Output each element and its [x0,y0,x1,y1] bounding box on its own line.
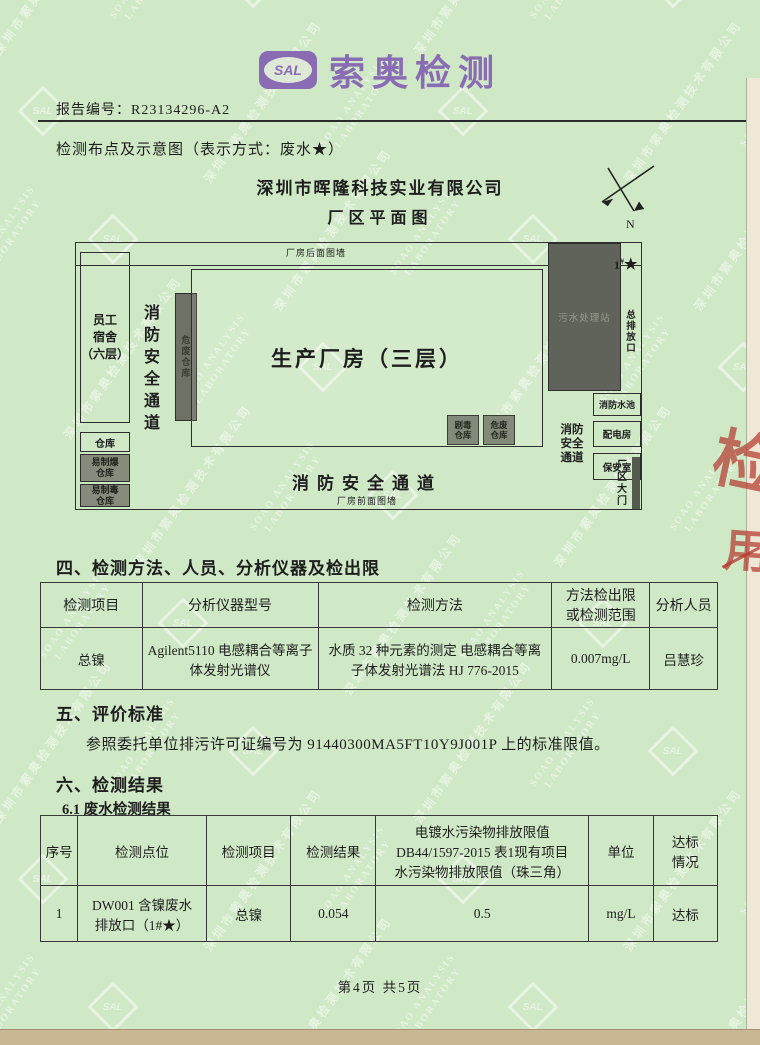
north-arrow-icon: N [578,158,658,236]
inner-warehouses: 剧毒 仓库 危废 仓库 [447,415,515,445]
sal-logo-text: SAL [274,62,302,78]
method-table-row: 总镍 Agilent5110 电感耦合等离子体发射光谱仪 水质 32 种元素的测… [41,628,718,690]
hazwaste-store-box: 危废 仓库 [483,415,515,445]
section5-body: 参照委托单位排污许可证编号为 91440300MA5FT10Y9J001P 上的… [56,733,716,754]
gate-bar [632,457,640,509]
section5-title: 五、评价标准 [56,700,164,725]
col-limit: 电镀水污染物排放限值 DB44/1597-2015 表1现有项目 水污染物排放限… [376,816,589,886]
col-method: 检测方法 [318,583,552,628]
report-number-value: R23134296-A2 [131,103,230,118]
col-compliance: 达标 情况 [653,816,717,886]
result-table-row: 1 DW001 含镍废水 排放口（1#★） 总镍 0.054 0.5 mg/L … [41,886,718,942]
cell-point: DW001 含镍废水 排放口（1#★） [78,886,207,942]
factory-floor-plan: 厂房后面图墙 员工 宿舍 （六层） 仓库 易制爆 仓库 易制毒 仓库 消 防 安… [75,242,642,510]
fire-lane-left-label: 消 防 安 全 通 道 [140,303,164,435]
cell-item: 总镍 [206,886,291,942]
front-wall-label: 厂房前面图墙 [191,494,543,507]
col-item: 检测项目 [206,816,291,886]
col-item: 检测项目 [41,583,143,628]
cell-detection-limit: 0.007mg/L [552,628,650,690]
page-edge-bottom [0,1029,760,1045]
red-seal-fragment: 用 [722,513,760,582]
back-wall-label: 厂房后面图墙 [136,246,496,259]
sal-logo-icon: SAL [259,51,317,89]
brand-name: 索奥检测 [329,44,501,96]
cell-compliance: 达标 [653,886,717,942]
sewage-treatment-station: 污水处理站 [548,243,621,391]
result-table-header-row: 序号 检测点位 检测项目 检测结果 电镀水污染物排放限值 DB44/1597-2… [41,816,718,886]
sampling-point-marker: 1#★ [614,255,637,274]
north-label: N [626,217,635,231]
explosive-warehouse-block: 易制爆 仓库 [80,454,130,482]
section4-title: 四、检测方法、人员、分析仪器及检出限 [56,554,380,579]
cell-method: 水质 32 种元素的测定 电感耦合等离子体发射光谱法 HJ 776-2015 [318,628,552,690]
result-table: 序号 检测点位 检测项目 检测结果 电镀水污染物排放限值 DB44/1597-2… [40,815,718,942]
col-analyst: 分析人员 [650,583,718,628]
report-number-label: 报告编号： [56,103,131,118]
section6-title: 六、检测结果 [56,771,164,796]
fire-pool-block: 消防水池 [593,393,641,416]
legend-line: 检测布点及示意图（表示方式：废水★） [56,138,344,159]
col-detection-limit: 方法检出限 或检测范围 [552,583,650,628]
gate-label: 厂区 大门 [614,460,630,508]
cell-item: 总镍 [41,628,143,690]
toxic-warehouse-block: 易制毒 仓库 [80,484,130,507]
cell-limit: 0.5 [376,886,589,942]
method-table: 检测项目 分析仪器型号 检测方法 方法检出限 或检测范围 分析人员 总镍 Agi… [40,582,718,690]
fire-lane-right-label: 消防 安全 通道 [553,423,591,465]
col-instrument: 分析仪器型号 [142,583,318,628]
main-building-label: 生产厂房（三层） [271,343,463,373]
col-seq: 序号 [41,816,78,886]
sampling-point-star-icon: ★ [624,257,637,273]
col-point: 检测点位 [78,816,207,886]
cell-instrument: Agilent5110 电感耦合等离子体发射光谱仪 [142,628,318,690]
col-result: 检测结果 [291,816,376,886]
toxic-store-box: 剧毒 仓库 [447,415,479,445]
report-number-line: 报告编号：R23134296-A2 [56,99,230,119]
main-outfall-label: 总 排 放 口 [623,311,639,355]
cell-unit: mg/L [589,886,653,942]
warehouse-block: 仓库 [80,432,130,452]
page-footer: 第4页 共5页 [0,976,760,996]
header-divider [38,120,746,122]
fire-lane-bottom-label: 消防安全通道 [191,469,543,494]
main-building: 生产厂房（三层） 剧毒 仓库 危废 仓库 [191,269,543,447]
report-page: 深圳市索奥检测技术有限公司SOAO ANALYSISLABORATORYSAL深… [0,0,760,1045]
method-table-header-row: 检测项目 分析仪器型号 检测方法 方法检出限 或检测范围 分析人员 [41,583,718,628]
power-room-block: 配电房 [593,421,641,447]
cell-analyst: 吕慧珍 [650,628,718,690]
col-unit: 单位 [589,816,653,886]
cell-seq: 1 [41,886,78,942]
dorm-block: 员工 宿舍 （六层） [80,252,130,423]
cell-result: 0.054 [291,886,376,942]
content-layer: SAL 索奥检测 报告编号：R23134296-A2 检测布点及示意图（表示方式… [0,0,760,1045]
header: SAL 索奥检测 [0,44,760,96]
